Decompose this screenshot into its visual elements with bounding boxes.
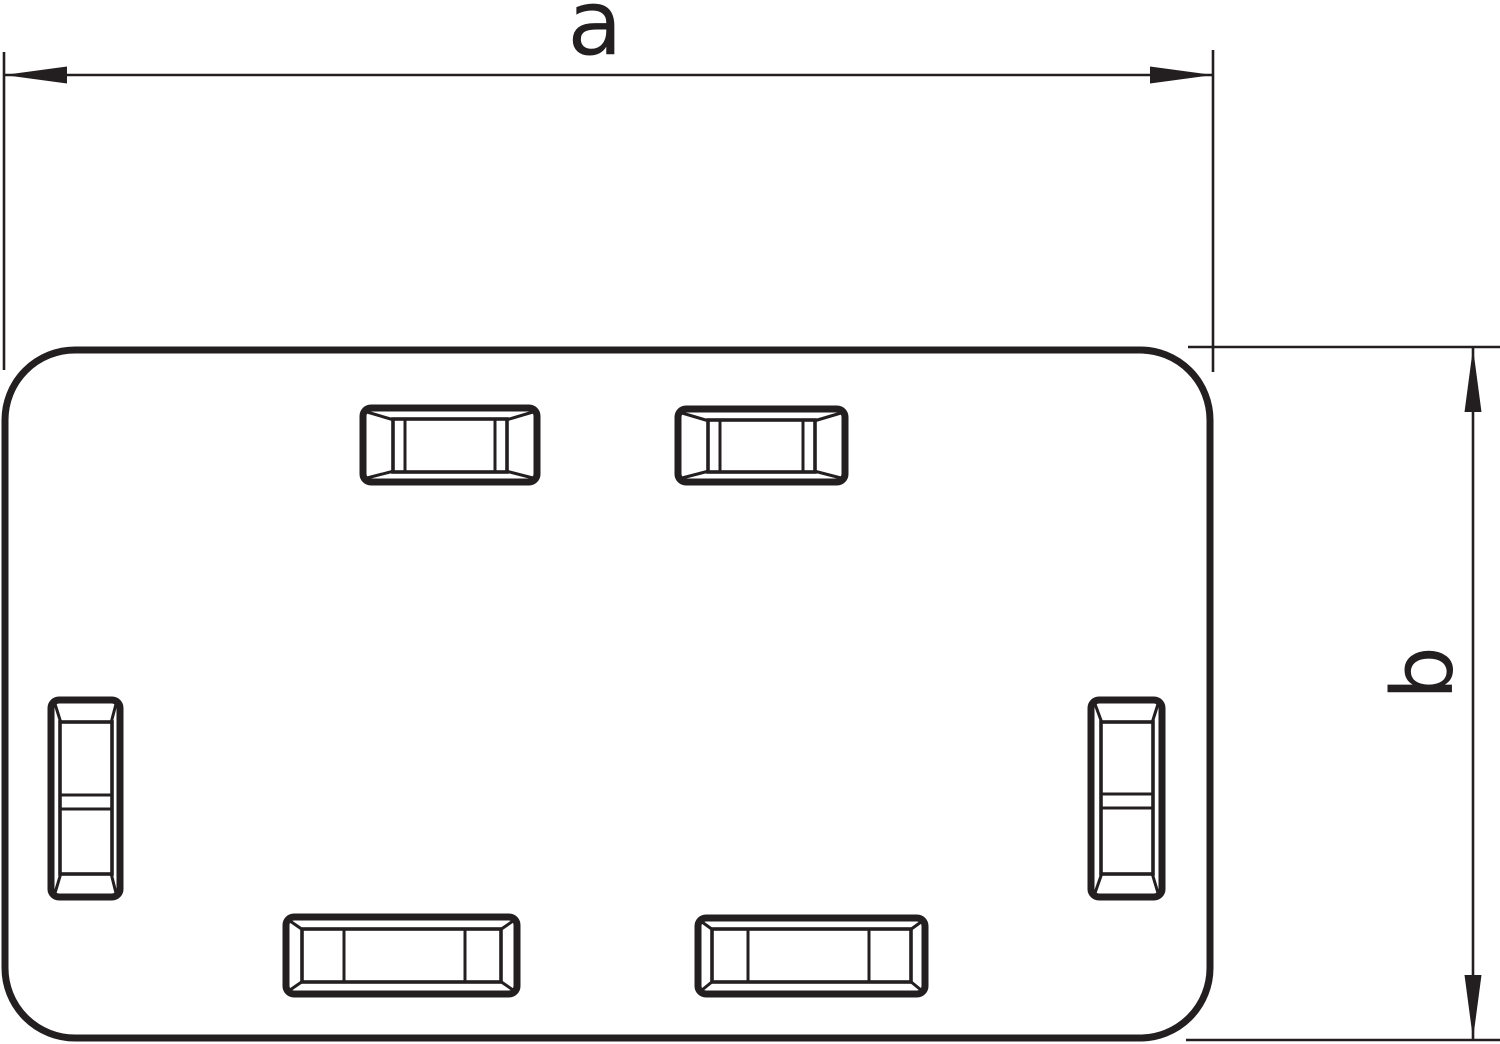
slot-top-right bbox=[678, 409, 845, 482]
slot-bottom-right-inner-opening bbox=[712, 929, 911, 982]
slot-bottom-right-bevel-br bbox=[910, 981, 921, 990]
slot-top-left-bevel-tr bbox=[506, 412, 533, 420]
slot-top-left bbox=[363, 408, 537, 482]
arrowhead-left-icon bbox=[4, 67, 67, 84]
slot-bottom-left-inner-opening bbox=[302, 929, 501, 982]
slot-left-bevel-br bbox=[111, 873, 116, 893]
dimension-a: a bbox=[4, 0, 1213, 372]
drawing-canvas: a b bbox=[0, 0, 1500, 1044]
arrowhead-right-icon bbox=[1150, 67, 1213, 84]
slot-top-left-inner-opening bbox=[393, 419, 507, 472]
slot-top-left-bevel-br bbox=[506, 471, 533, 478]
slot-top-right-bevel-tl bbox=[682, 413, 709, 421]
dimension-a-label: a bbox=[567, 0, 622, 76]
slot-right-bevel-br bbox=[1152, 873, 1158, 893]
slot-bottom-left-bevel-bl bbox=[290, 981, 303, 990]
slot-bottom-right-bevel-tl bbox=[702, 922, 713, 930]
slot-bottom-left-bevel-tl bbox=[290, 921, 303, 930]
part-body-outline bbox=[5, 350, 1210, 1038]
slot-bottom-left-bevel-tr bbox=[500, 921, 513, 930]
technical-drawing: a b bbox=[0, 0, 1500, 1044]
slot-top-right-bevel-br bbox=[814, 471, 841, 478]
slot-top-right-bevel-tr bbox=[814, 413, 841, 421]
slot-right-bevel-tr bbox=[1152, 704, 1158, 723]
slot-left-side bbox=[51, 700, 120, 897]
slot-right-side bbox=[1091, 700, 1162, 897]
slot-left-bevel-tl bbox=[55, 704, 61, 723]
slot-bottom-right-bevel-tr bbox=[910, 922, 921, 930]
slot-left-bevel-bl bbox=[55, 873, 61, 893]
slot-right-bevel-bl bbox=[1095, 873, 1102, 893]
slot-top-left-bevel-tl bbox=[367, 412, 394, 420]
slot-bottom-right-bevel-bl bbox=[702, 981, 713, 990]
arrowhead-up-icon bbox=[1465, 348, 1482, 412]
dimension-b: b bbox=[1186, 347, 1500, 1040]
slot-bottom-left-bevel-br bbox=[500, 981, 513, 990]
slot-right-bevel-tl bbox=[1095, 704, 1102, 723]
dimension-b-label: b bbox=[1374, 646, 1473, 700]
slot-top-right-inner-opening bbox=[708, 420, 815, 472]
slot-bottom-left bbox=[286, 917, 517, 994]
slot-left-inner-opening bbox=[60, 722, 112, 874]
slot-right-inner-opening bbox=[1101, 722, 1153, 874]
arrowhead-down-icon bbox=[1465, 975, 1482, 1039]
slot-left-bevel-tr bbox=[111, 704, 116, 723]
slot-top-left-bevel-bl bbox=[367, 471, 394, 478]
slot-bottom-right bbox=[698, 918, 925, 994]
slot-top-right-bevel-bl bbox=[682, 471, 709, 478]
